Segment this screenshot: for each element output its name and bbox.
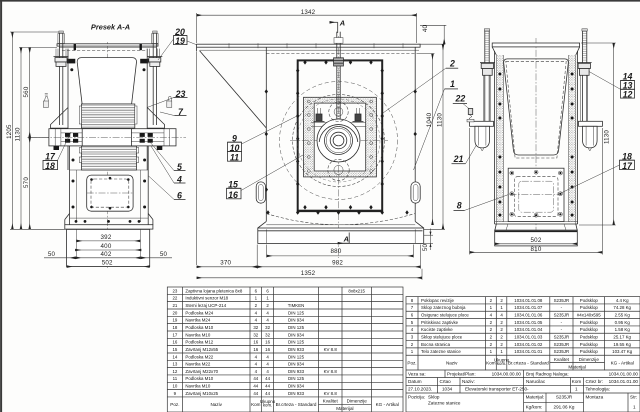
- svg-text:Dimenzije: Dimenzije: [579, 357, 600, 362]
- svg-text:Navrtka M24: Navrtka M24: [185, 318, 210, 323]
- svg-text:A: A: [343, 235, 349, 244]
- svg-text:DIN 125: DIN 125: [288, 354, 305, 359]
- svg-text:16: 16: [253, 347, 258, 352]
- svg-text:402: 402: [101, 251, 112, 258]
- svg-text:Podsklop: Podsklop: [580, 335, 599, 340]
- svg-text:Poklopac revizije: Poklopac revizije: [421, 298, 455, 303]
- svg-text:1034.01.01.01: 1034.01.01.01: [514, 349, 543, 354]
- svg-text:50: 50: [160, 251, 168, 258]
- svg-text:23: 23: [172, 288, 177, 293]
- svg-text:Kg/kom:: Kg/kom:: [526, 404, 543, 409]
- svg-text:KV 8.8: KV 8.8: [324, 391, 338, 396]
- svg-text:S235JR: S235JR: [554, 349, 570, 354]
- svg-text:DIN 934: DIN 934: [288, 332, 305, 337]
- svg-text:1.58 Kg: 1.58 Kg: [615, 327, 631, 332]
- svg-text:291.06 Kg: 291.06 Kg: [554, 404, 575, 409]
- svg-text:DIN 933: DIN 933: [288, 391, 305, 396]
- svg-text:16: 16: [265, 340, 270, 345]
- svg-text:Dimenzije: Dimenzije: [347, 398, 368, 403]
- svg-text:103.47 Kg: 103.47 Kg: [612, 349, 633, 354]
- svg-text:Poz.: Poz.: [407, 361, 416, 366]
- svg-text:DIN 934: DIN 934: [288, 384, 305, 389]
- svg-text:DIN 125: DIN 125: [288, 325, 305, 330]
- svg-text:Zavrtanj M12x55: Zavrtanj M12x55: [185, 347, 218, 352]
- svg-text:Crtao: Crtao: [440, 379, 452, 384]
- svg-text:Datum: Datum: [408, 379, 422, 384]
- svg-text:S235JR: S235JR: [554, 342, 570, 347]
- svg-text:Kuciste zaptivke: Kuciste zaptivke: [421, 327, 453, 332]
- svg-text:11: 11: [230, 152, 239, 162]
- svg-text:Materijal: Materijal: [568, 364, 585, 369]
- svg-text:1034.00.00.00: 1034.00.00.00: [492, 371, 522, 376]
- svg-text:370: 370: [220, 259, 231, 266]
- svg-text:Stemi lezaj UCP-214: Stemi lezaj UCP-214: [185, 303, 226, 308]
- svg-text:Bocna stranica: Bocna stranica: [421, 342, 451, 347]
- svg-text:19.55 Kg: 19.55 Kg: [613, 342, 631, 347]
- svg-text:KG - Artikal: KG - Artikal: [376, 402, 399, 407]
- svg-text:1: 1: [633, 404, 636, 409]
- svg-text:Str:: Str:: [630, 395, 637, 400]
- svg-text:Pritiskivac zaptivke: Pritiskivac zaptivke: [421, 320, 459, 325]
- svg-text:DIN 933: DIN 933: [288, 369, 305, 374]
- svg-text:13: 13: [172, 362, 177, 367]
- svg-text:Montaza: Montaza: [586, 395, 604, 400]
- svg-text:Narucilac: Narucilac: [526, 379, 546, 384]
- svg-text:502: 502: [102, 260, 113, 267]
- svg-text:22: 22: [172, 296, 177, 301]
- svg-text:392: 392: [101, 234, 112, 241]
- svg-text:32: 32: [253, 325, 258, 330]
- svg-text:Kom: Kom: [572, 379, 582, 384]
- svg-text:Tehnologija:: Tehnologija:: [586, 387, 611, 392]
- svg-text:Materijal:: Materijal:: [526, 395, 545, 400]
- svg-text:DIN 125: DIN 125: [288, 376, 305, 381]
- svg-text:1: 1: [575, 387, 578, 392]
- svg-text:1034.01.01.03: 1034.01.01.03: [514, 335, 543, 340]
- svg-text:#4x140x595: #4x140x595: [577, 313, 601, 318]
- svg-text:12: 12: [623, 89, 633, 99]
- svg-text:1342: 1342: [301, 9, 316, 16]
- svg-text:570: 570: [23, 177, 30, 188]
- svg-text:Osigurac stelujuce ploce: Osigurac stelujuce ploce: [421, 313, 469, 318]
- svg-text:1: 1: [450, 79, 455, 89]
- svg-text:Podloska M22: Podloska M22: [185, 354, 213, 359]
- svg-text:Naziv: Naziv: [210, 402, 222, 407]
- svg-text:Zatezne stanice: Zatezne stanice: [428, 401, 461, 406]
- svg-text:74.28 Kg: 74.28 Kg: [613, 305, 631, 310]
- svg-text:Podloska M24: Podloska M24: [185, 310, 213, 315]
- svg-text:19: 19: [175, 36, 185, 46]
- svg-text:20: 20: [172, 310, 177, 315]
- svg-text:44: 44: [253, 391, 258, 396]
- svg-text:Induktivni senzor M18: Induktivni senzor M18: [185, 296, 228, 301]
- svg-text:1034.01.01.08: 1034.01.01.08: [514, 298, 543, 303]
- svg-text:25.17 Kg: 25.17 Kg: [613, 335, 631, 340]
- svg-text:44: 44: [265, 391, 270, 396]
- svg-text:Sklop: Sklop: [428, 395, 440, 400]
- svg-text:44: 44: [265, 376, 270, 381]
- svg-text:Telo zatezne stanice: Telo zatezne stanice: [421, 349, 461, 354]
- svg-text:A: A: [339, 18, 345, 27]
- svg-text:12: 12: [172, 369, 177, 374]
- svg-text:32: 32: [253, 332, 258, 337]
- svg-text:21: 21: [453, 154, 464, 164]
- svg-text:18: 18: [172, 325, 177, 330]
- svg-text:44: 44: [253, 376, 258, 381]
- svg-text:8: 8: [457, 201, 462, 211]
- svg-text:Sklop zateznog bubnja: Sklop zateznog bubnja: [421, 305, 466, 310]
- svg-text:Poz.: Poz.: [170, 402, 179, 407]
- svg-text:kom.: kom.: [263, 402, 273, 407]
- svg-text:1034.01.01.07: 1034.01.01.07: [514, 305, 543, 310]
- svg-text:16: 16: [265, 347, 270, 352]
- svg-text:10: 10: [172, 384, 177, 389]
- svg-text:502: 502: [531, 237, 542, 244]
- svg-text:27.10.2023.: 27.10.2023.: [408, 387, 432, 392]
- svg-text:Presek A-A: Presek A-A: [91, 22, 130, 31]
- svg-text:S235JR: S235JR: [554, 335, 570, 340]
- svg-text:15: 15: [172, 347, 177, 352]
- svg-text:Crtez br:: Crtez br:: [586, 379, 604, 384]
- svg-text:Zavrtanj M10x25: Zavrtanj M10x25: [185, 391, 218, 396]
- svg-text:Podsklop: Podsklop: [580, 320, 599, 325]
- svg-text:16: 16: [253, 340, 258, 345]
- svg-text:19: 19: [172, 318, 177, 323]
- svg-text:44: 44: [265, 384, 270, 389]
- svg-text:4.4 Kg: 4.4 Kg: [616, 298, 629, 303]
- svg-text:32: 32: [265, 325, 270, 330]
- svg-text:1034.01.01.05: 1034.01.01.05: [514, 320, 543, 325]
- svg-text:S235JR: S235JR: [554, 298, 570, 303]
- svg-text:982: 982: [332, 259, 343, 266]
- svg-text:Podloska M10: Podloska M10: [185, 325, 213, 330]
- svg-text:810: 810: [531, 246, 542, 253]
- svg-text:1034: 1034: [442, 387, 453, 392]
- svg-text:18: 18: [45, 161, 55, 171]
- svg-text:40: 40: [422, 25, 429, 33]
- svg-text:DIN 934: DIN 934: [288, 362, 305, 367]
- svg-text:Podsklop: Podsklop: [580, 327, 599, 332]
- svg-text:2.55 Kg: 2.55 Kg: [615, 313, 631, 318]
- svg-text:Materijal: Materijal: [336, 406, 353, 411]
- svg-text:TIMKEN: TIMKEN: [288, 303, 305, 308]
- svg-text:1130: 1130: [436, 113, 443, 127]
- svg-text:DIN 125: DIN 125: [288, 340, 305, 345]
- svg-text:1034.01.00.00: 1034.01.00.00: [609, 371, 639, 376]
- svg-text:Navrtka M10: Navrtka M10: [185, 384, 210, 389]
- svg-text:DIN 125: DIN 125: [288, 310, 305, 315]
- svg-text:44: 44: [253, 384, 258, 389]
- svg-text:KV 8.8: KV 8.8: [324, 369, 338, 374]
- svg-text:S235JR: S235JR: [554, 313, 570, 318]
- svg-text:400: 400: [101, 243, 112, 250]
- svg-text:16: 16: [172, 340, 177, 345]
- svg-text:11: 11: [173, 376, 178, 381]
- svg-text:1352: 1352: [301, 270, 316, 277]
- svg-text:Podloska M10: Podloska M10: [185, 376, 213, 381]
- svg-text:Podsklop: Podsklop: [580, 342, 599, 347]
- svg-text:21: 21: [172, 303, 177, 308]
- svg-text:Projekat/Plan:: Projekat/Plan:: [447, 371, 476, 376]
- svg-text:1040: 1040: [426, 112, 433, 127]
- svg-text:880: 880: [331, 248, 342, 255]
- svg-text:50: 50: [48, 251, 56, 258]
- svg-text:2: 2: [449, 58, 455, 68]
- svg-text:0.95 Kg: 0.95 Kg: [615, 320, 631, 325]
- svg-text:Veza sa:: Veza sa:: [408, 371, 426, 376]
- svg-text:S235JR: S235JR: [556, 395, 573, 400]
- svg-text:1034.01.01.06: 1034.01.01.06: [514, 313, 543, 318]
- svg-text:1205: 1205: [6, 124, 13, 139]
- svg-text:50: 50: [422, 244, 429, 252]
- svg-text:17: 17: [172, 332, 177, 337]
- svg-text:DIN 933: DIN 933: [288, 347, 305, 352]
- svg-text:Kvalitet: Kvalitet: [323, 398, 339, 403]
- svg-text:32: 32: [265, 332, 270, 337]
- svg-text:Navrtka M10: Navrtka M10: [185, 332, 210, 337]
- svg-text:Podloska M12: Podloska M12: [185, 340, 213, 345]
- svg-text:Broj Radnog Naloga:: Broj Radnog Naloga:: [526, 371, 569, 376]
- svg-text:Navrtka M22: Navrtka M22: [185, 362, 210, 367]
- svg-text:1034.01.01.04: 1034.01.01.04: [514, 327, 543, 332]
- svg-text:1034.01.01.00: 1034.01.01.00: [609, 379, 639, 384]
- svg-text:1130: 1130: [604, 130, 611, 144]
- svg-text:kom.: kom.: [497, 361, 507, 366]
- svg-text:Naziv: Naziv: [446, 361, 458, 366]
- svg-text:8x8x215: 8x8x215: [348, 288, 365, 293]
- svg-text:Podsklop: Podsklop: [580, 305, 599, 310]
- svg-text:17: 17: [622, 161, 633, 171]
- svg-text:560: 560: [23, 86, 30, 97]
- svg-text:Naziv:: Naziv:: [462, 379, 475, 384]
- svg-text:Zaptivna lojana pletenica 8x8: Zaptivna lojana pletenica 8x8: [185, 288, 242, 293]
- svg-text:Zavrtanj M22x70: Zavrtanj M22x70: [185, 369, 218, 374]
- svg-text:KG - Artikal: KG - Artikal: [611, 361, 634, 366]
- svg-text:Br.crteza - Standard: Br.crteza - Standard: [276, 402, 317, 407]
- svg-text:Elevatorski transporter ET-250: Elevatorski transporter ET-250: [465, 387, 527, 392]
- svg-text:Br.crteza - Standard: Br.crteza - Standard: [508, 361, 549, 366]
- svg-text:Kvalitet: Kvalitet: [554, 357, 570, 362]
- svg-text:Podsklop: Podsklop: [580, 298, 599, 303]
- svg-text:DIN 934: DIN 934: [288, 318, 305, 323]
- svg-text:Pozicija:: Pozicija:: [408, 395, 425, 400]
- svg-text:14: 14: [172, 354, 177, 359]
- svg-text:Sklop stelujuce ploce: Sklop stelujuce ploce: [421, 335, 463, 340]
- svg-text:KV 8.8: KV 8.8: [324, 347, 338, 352]
- svg-text:22: 22: [455, 94, 466, 104]
- svg-text:Podsklop: Podsklop: [580, 349, 599, 354]
- svg-text:1034.01.01.02: 1034.01.01.02: [514, 342, 543, 347]
- svg-text:1130: 1130: [14, 127, 21, 141]
- svg-text:16: 16: [228, 190, 238, 200]
